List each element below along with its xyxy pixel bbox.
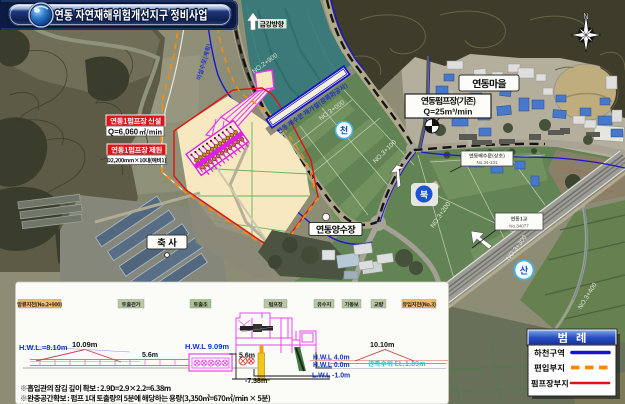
- svg-text:L.W.L -1.0m: L.W.L -1.0m: [312, 373, 350, 380]
- svg-text:No.34-131: No.34-131: [476, 160, 498, 165]
- svg-text:10.10m: 10.10m: [370, 340, 394, 349]
- svg-text:5.6m: 5.6m: [239, 353, 255, 360]
- svg-text:H.W.L 4.0m: H.W.L 4.0m: [313, 355, 350, 362]
- svg-text:Q=25m³/min: Q=25m³/min: [424, 107, 473, 117]
- svg-text:5.6m: 5.6m: [142, 352, 158, 359]
- svg-text:H.W.L 9.09m: H.W.L 9.09m: [185, 342, 229, 351]
- svg-text:H.W.L 0.0m: H.W.L 0.0m: [313, 362, 350, 369]
- svg-text:H.W.L.=8.10m: H.W.L.=8.10m: [19, 343, 68, 352]
- svg-text:N: N: [583, 12, 589, 21]
- svg-text:10.09m: 10.09m: [72, 340, 98, 349]
- svg-text:Q=6,060: Q=6,060: [108, 128, 139, 137]
- svg-text:-7.38m: -7.38m: [245, 378, 267, 385]
- svg-text:No.34077: No.34077: [509, 224, 529, 229]
